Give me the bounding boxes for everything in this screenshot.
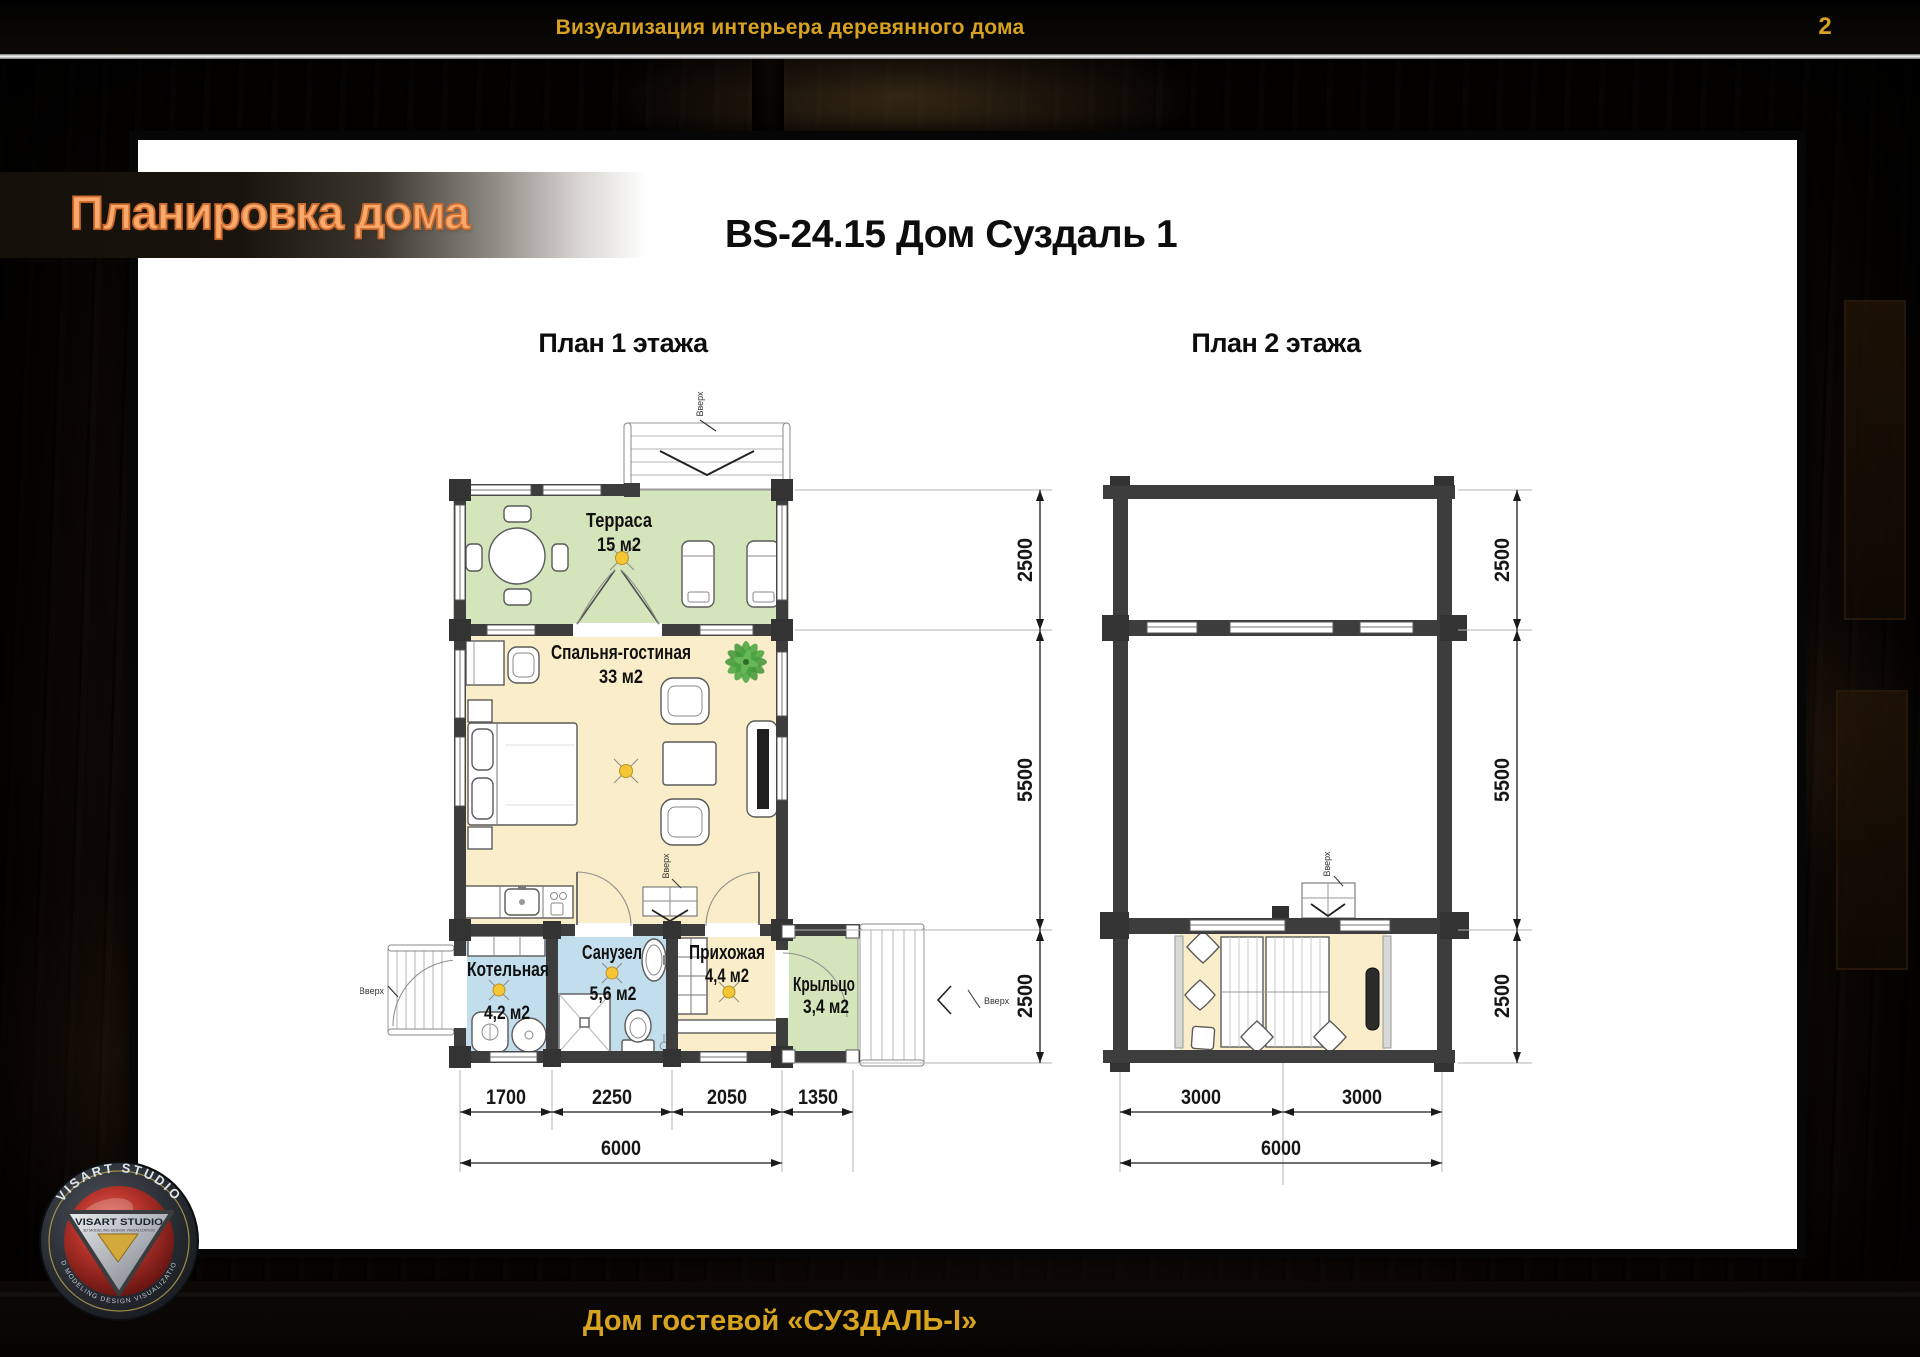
dim-label: 2500 bbox=[1491, 538, 1514, 582]
section-title: Планировка дома bbox=[70, 185, 469, 240]
plan2-dimensions: 2500 5500 2500 3000 3000 6000 bbox=[1120, 490, 1532, 1185]
loft-door bbox=[1366, 968, 1379, 1030]
room-area-label: 33 м2 bbox=[599, 667, 643, 688]
presentation-slide-screen: Визуализация интерьера деревянного дома … bbox=[0, 0, 1920, 1357]
kitchen-counter bbox=[465, 886, 573, 918]
background-picture-frame bbox=[1844, 300, 1906, 620]
dim-label: 2500 bbox=[1491, 974, 1514, 1018]
floor-plan-1: Вверх Вверх Вверх bbox=[360, 391, 1052, 1172]
logo-triangle-subtitle: 3D MODELING DESIGN VISUALIZATION bbox=[83, 1229, 156, 1233]
dim-label: 3000 bbox=[1181, 1086, 1221, 1109]
loft-side-post bbox=[1383, 936, 1391, 1048]
bedroom-desk-chair bbox=[466, 641, 539, 685]
dim-total-label: 6000 bbox=[601, 1137, 641, 1160]
stairs-up-label: Вверх bbox=[695, 391, 705, 417]
room-label: Санузел bbox=[582, 942, 642, 964]
logo-triangle-title: VISART STUDIO bbox=[75, 1217, 163, 1227]
room-area-label: 4,4 м2 bbox=[705, 966, 749, 987]
stairs-porch-side: Вверх bbox=[860, 924, 1010, 1066]
room-label: Крыльцо bbox=[793, 974, 855, 996]
tv-cabinet bbox=[747, 721, 777, 817]
deck-title: Визуализация интерьера деревянного дома bbox=[0, 16, 1580, 40]
loft-side-post bbox=[1175, 936, 1183, 1048]
room-label: Терраса bbox=[586, 510, 653, 532]
dim-label: 2500 bbox=[1014, 974, 1037, 1018]
room-area-label: 15 м2 bbox=[597, 535, 641, 556]
plan1-caption: План 1 этажа bbox=[513, 328, 733, 359]
room-area-label: 5,6 м2 bbox=[590, 984, 637, 1005]
room-label: Спальня-гостиная bbox=[551, 642, 691, 664]
stairs-up-label: Вверх bbox=[661, 853, 671, 879]
dim-label: 5500 bbox=[1491, 758, 1514, 802]
studio-logo: VISART STUDIO 3D MODELING DESIGN VISUALI… bbox=[34, 1156, 204, 1326]
stairs-left-entry: Вверх bbox=[360, 945, 454, 1035]
stairs-up-label: Вверх bbox=[984, 996, 1010, 1006]
page-number: 2 bbox=[1800, 13, 1850, 41]
plan2-caption: План 2 этажа bbox=[1166, 328, 1386, 359]
floor-plans-drawing: Вверх Вверх Вверх bbox=[360, 375, 1560, 1185]
dim-label: 5500 bbox=[1014, 758, 1037, 802]
background-cabinet bbox=[1836, 690, 1908, 970]
stairs-up-label: Вверх bbox=[360, 986, 384, 996]
dim-label: 2500 bbox=[1014, 538, 1037, 582]
dim-label: 1350 bbox=[798, 1086, 838, 1109]
room-area-label: 4,2 м2 bbox=[484, 1003, 530, 1024]
footer-bar: Дом гостевой «СУЗДАЛЬ-I» bbox=[0, 1281, 1920, 1357]
dim-label: 3000 bbox=[1342, 1086, 1382, 1109]
background-ceiling-beam bbox=[752, 57, 784, 131]
floor-plan-2: Вверх bbox=[1100, 476, 1532, 1185]
living-armchairs-table bbox=[661, 678, 716, 845]
stairs-up-label: Вверх bbox=[1322, 851, 1332, 877]
dim-label: 1700 bbox=[486, 1086, 526, 1109]
stairs-top-entrance: Вверх bbox=[624, 391, 790, 489]
room-label: Котельная bbox=[467, 959, 549, 981]
dim-total-label: 6000 bbox=[1261, 1137, 1301, 1160]
footer-title: Дом гостевой «СУЗДАЛЬ-I» bbox=[0, 1305, 1560, 1338]
top-bar: Визуализация интерьера деревянного дома … bbox=[0, 0, 1920, 55]
chimney-block bbox=[1272, 906, 1289, 919]
loft-mattresses bbox=[1221, 937, 1329, 1047]
room-label: Прихожая bbox=[689, 942, 765, 964]
slide-heading: BS-24.15 Дом Суздаль 1 bbox=[601, 213, 1301, 257]
top-divider-line bbox=[0, 54, 1920, 59]
section-banner: Планировка дома bbox=[0, 172, 666, 258]
dim-label: 2250 bbox=[592, 1086, 632, 1109]
dim-label: 2050 bbox=[707, 1086, 747, 1109]
room-area-label: 3,4 м2 bbox=[803, 997, 849, 1018]
stairs-arrival: Вверх bbox=[1302, 851, 1355, 918]
